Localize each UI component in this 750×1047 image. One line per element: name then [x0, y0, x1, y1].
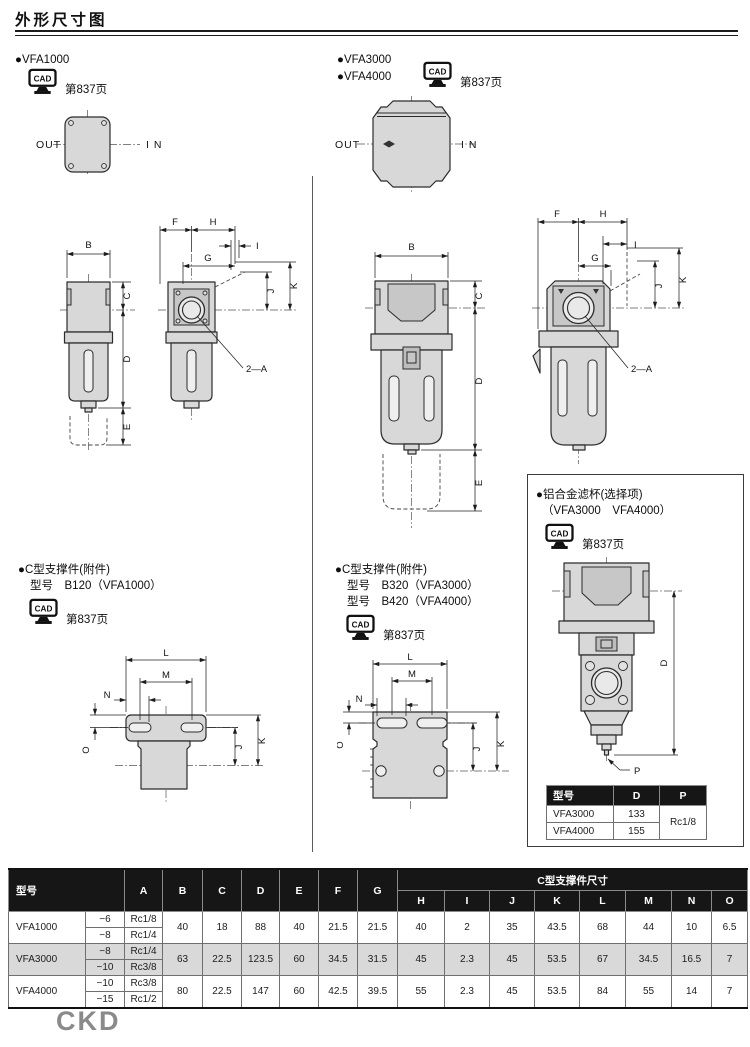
cad-page-ref: 第837页 — [383, 627, 425, 646]
col-header-m: M — [626, 891, 672, 912]
cell-i: 2.3 — [445, 976, 490, 1009]
page-title: 外形尺寸图 — [15, 8, 108, 30]
vfa1000-model-label: ●VFA1000 — [15, 52, 69, 68]
cell-k: 53.5 — [535, 976, 580, 1009]
bracket-small-cad-row: CAD 第837页 — [28, 597, 108, 630]
cell-e: 60 — [280, 944, 319, 976]
cell-size: −10 — [86, 960, 125, 976]
metal-bowl-title: ●铝合金滤杯(选择项) — [536, 487, 643, 503]
vfa1000-cad-row: CAD 第837页 — [27, 67, 107, 100]
cell-o: 7 — [712, 944, 748, 976]
svg-text:CAD: CAD — [551, 529, 569, 538]
dim-label-j: J — [472, 746, 483, 751]
col-header-f: F — [319, 869, 358, 912]
table-row: VFA3000 133 Rc1/8 — [547, 806, 707, 823]
dim-label-j: J — [654, 283, 665, 288]
cad-page-ref: 第837页 — [66, 611, 108, 630]
title-rule — [15, 30, 738, 36]
col-header-l: L — [580, 891, 626, 912]
svg-text:CAD: CAD — [429, 67, 447, 76]
dimension-table: 型号 A B C D E F G C型支撑件尺寸 H I J K L M N O — [8, 868, 748, 1009]
dim-label-i: I — [634, 240, 637, 251]
table-row: VFA1000 −6 Rc1/8 40 18 88 40 21.5 21.5 4… — [9, 912, 748, 928]
cell-n: 16.5 — [672, 944, 712, 976]
cad-page-ref: 第837页 — [582, 536, 624, 555]
cad-icon: CAD — [422, 60, 453, 93]
dim-label-k: K — [257, 737, 268, 744]
cell-size: −6 — [86, 912, 125, 928]
col-header-h: H — [398, 891, 445, 912]
dim-label-m: M — [162, 670, 170, 681]
cell-h: 40 — [398, 912, 445, 944]
cell-thread: Rc3/8 — [125, 960, 163, 976]
cell-thread: Rc1/4 — [125, 928, 163, 944]
cell-c: 22.5 — [203, 976, 242, 1009]
cell-d: 147 — [242, 976, 280, 1009]
svg-text:CAD: CAD — [35, 604, 53, 613]
vfa1000-top-view-drawing: OUT I N — [28, 106, 188, 178]
col-header-k: K — [535, 891, 580, 912]
dim-label-b: B — [408, 242, 414, 253]
dim-label-e: E — [122, 424, 133, 430]
col-header-a: A — [125, 869, 163, 912]
bracket-small-title: ●C型支撑件(附件) — [18, 562, 110, 578]
col-header-model: 型号 — [9, 869, 125, 912]
dim-label-l: L — [163, 648, 168, 659]
cell-p-shared: Rc1/8 — [660, 806, 707, 840]
cell-thread: Rc3/8 — [125, 976, 163, 992]
vfa3000-model-label: ●VFA3000 — [337, 52, 391, 68]
dim-label-f: F — [554, 209, 560, 220]
dim-label-d: D — [474, 377, 485, 384]
catalog-page: 外形尺寸图 ●VFA1000 CAD 第837页 OUT I N — [0, 0, 750, 1047]
cad-icon: CAD — [27, 67, 58, 100]
dim-label-j: J — [234, 744, 245, 749]
bracket-large-title: ●C型支撑件(附件) — [335, 562, 427, 578]
vfa1000-side-view — [166, 282, 217, 408]
column-divider — [312, 176, 313, 852]
dim-label-p: P — [634, 766, 640, 777]
col-header-j: J — [490, 891, 535, 912]
dim-label-g: G — [204, 253, 211, 264]
bracket-large-model-1: 型号 B320（VFA3000） — [347, 578, 479, 594]
dim-label-b: B — [85, 240, 91, 251]
cell-size: −10 — [86, 976, 125, 992]
dim-label-o: O — [337, 741, 346, 748]
col-header-b: B — [163, 869, 203, 912]
dim-label-m: M — [408, 669, 416, 680]
cad-icon: CAD — [544, 522, 575, 555]
cad-icon-label: CAD — [34, 74, 52, 83]
metal-bowl-cad-row: CAD 第837页 — [544, 522, 624, 555]
cell-j: 35 — [490, 912, 535, 944]
cell-f: 21.5 — [319, 912, 358, 944]
dim-label-o: O — [81, 746, 92, 753]
col-header-d: D — [614, 786, 660, 806]
cell-k: 43.5 — [535, 912, 580, 944]
cad-page-ref: 第837页 — [460, 74, 502, 93]
metal-bowl-drawing: D P — [534, 555, 734, 781]
cell-e: 60 — [280, 976, 319, 1009]
dim-label-k: K — [289, 282, 300, 289]
vfa4000-model-label: ●VFA4000 — [337, 69, 391, 85]
cell-thread: Rc1/2 — [125, 992, 163, 1009]
port-callout-label: 2—A — [246, 364, 268, 375]
cell-thread: Rc1/8 — [125, 912, 163, 928]
cell-l: 84 — [580, 976, 626, 1009]
table-row: VFA4000 −10 Rc3/8 80 22.5 147 60 42.5 39… — [9, 976, 748, 992]
cell-l: 68 — [580, 912, 626, 944]
cell-d: 123.5 — [242, 944, 280, 976]
cell-model: VFA4000 — [547, 823, 614, 840]
col-header-model: 型号 — [547, 786, 614, 806]
cell-model: VFA1000 — [9, 912, 86, 944]
cad-page-ref: 第837页 — [65, 81, 107, 100]
bracket-small-model: 型号 B120（VFA1000） — [30, 578, 162, 594]
vfa1000-dimension-drawing: B C D E F H I G — [40, 192, 310, 477]
cell-j: 45 — [490, 976, 535, 1009]
dim-label-g: G — [591, 253, 598, 264]
cell-m: 55 — [626, 976, 672, 1009]
bracket-body — [126, 715, 206, 789]
dim-label-i: I — [256, 241, 259, 252]
cell-b: 63 — [163, 944, 203, 976]
dim-label-l: L — [407, 652, 412, 663]
out-port-label: OUT — [335, 139, 360, 151]
cell-l: 67 — [580, 944, 626, 976]
in-port-label: I N — [146, 139, 162, 151]
svg-text:CAD: CAD — [352, 620, 370, 629]
col-header-p: P — [660, 786, 707, 806]
vfa3000-side-view — [533, 281, 618, 450]
cell-g: 39.5 — [358, 976, 398, 1009]
cell-n: 10 — [672, 912, 712, 944]
dim-label-c: C — [474, 292, 485, 299]
cell-h: 55 — [398, 976, 445, 1009]
metal-bowl-subtitle: （VFA3000 VFA4000） — [542, 503, 671, 519]
metal-bowl-body — [559, 563, 654, 755]
cell-b: 80 — [163, 976, 203, 1009]
col-header-c: C — [203, 869, 242, 912]
cell-b: 40 — [163, 912, 203, 944]
col-header-i: I — [445, 891, 490, 912]
drain-sight-circle — [592, 668, 622, 698]
bracket-large-cad-row: CAD 第837页 — [345, 613, 425, 646]
cell-n: 14 — [672, 976, 712, 1009]
col-group-header-bracket: C型支撑件尺寸 — [398, 869, 748, 891]
dim-label-k: K — [496, 740, 507, 747]
dim-label-n: N — [104, 690, 111, 701]
dim-label-k: K — [678, 276, 689, 283]
cell-e: 40 — [280, 912, 319, 944]
port-callout-label: 2—A — [631, 364, 653, 375]
col-header-d: D — [242, 869, 280, 912]
cell-c: 22.5 — [203, 944, 242, 976]
dim-label-j: J — [266, 288, 277, 293]
cad-icon: CAD — [28, 597, 59, 630]
col-header-o: O — [712, 891, 748, 912]
cell-d: 88 — [242, 912, 280, 944]
cell-size: −8 — [86, 944, 125, 960]
cell-model: VFA3000 — [547, 806, 614, 823]
bracket-large-model-2: 型号 B420（VFA4000） — [347, 594, 479, 610]
metal-bowl-option-box: ●铝合金滤杯(选择项) （VFA3000 VFA4000） CAD 第837页 — [527, 474, 744, 847]
col-header-e: E — [280, 869, 319, 912]
dim-label-n: N — [356, 694, 363, 705]
cell-i: 2 — [445, 912, 490, 944]
cell-model: VFA3000 — [9, 944, 86, 976]
cell-m: 34.5 — [626, 944, 672, 976]
dim-label-h: H — [600, 209, 607, 220]
bracket-body — [370, 712, 447, 798]
dim-label-d: D — [659, 659, 670, 666]
vfa3000-cad-row: CAD 第837页 — [422, 60, 502, 93]
dim-label-c: C — [122, 292, 133, 299]
cell-d: 133 — [614, 806, 660, 823]
cell-o: 6.5 — [712, 912, 748, 944]
dim-label-f: F — [172, 217, 178, 228]
cell-thread: Rc1/4 — [125, 944, 163, 960]
col-header-g: G — [358, 869, 398, 912]
cad-icon: CAD — [345, 613, 376, 646]
cell-g: 21.5 — [358, 912, 398, 944]
cell-f: 34.5 — [319, 944, 358, 976]
cell-j: 45 — [490, 944, 535, 976]
cell-o: 7 — [712, 976, 748, 1009]
brand-logo: CKD — [56, 1006, 121, 1037]
out-port-label: OUT — [36, 139, 61, 151]
dim-label-h: H — [210, 217, 217, 228]
cell-d: 155 — [614, 823, 660, 840]
metal-bowl-table: 型号 D P VFA3000 133 Rc1/8 VFA4000 155 — [546, 785, 707, 840]
cell-g: 31.5 — [358, 944, 398, 976]
table-row: VFA3000 −8 Rc1/4 63 22.5 123.5 60 34.5 3… — [9, 944, 748, 960]
cell-i: 2.3 — [445, 944, 490, 976]
cell-c: 18 — [203, 912, 242, 944]
dim-label-e: E — [474, 480, 485, 486]
dim-label-d: D — [122, 355, 133, 362]
vfa3000-top-view-drawing: OUT I N — [333, 94, 498, 194]
bracket-b120-drawing: L M N O J K — [60, 642, 310, 832]
bracket-clip — [533, 349, 540, 373]
cell-f: 42.5 — [319, 976, 358, 1009]
cell-size: −8 — [86, 928, 125, 944]
cell-m: 44 — [626, 912, 672, 944]
in-port-label: I N — [461, 139, 477, 151]
cell-h: 45 — [398, 944, 445, 976]
cell-k: 53.5 — [535, 944, 580, 976]
col-header-n: N — [672, 891, 712, 912]
cell-model: VFA4000 — [9, 976, 86, 1009]
